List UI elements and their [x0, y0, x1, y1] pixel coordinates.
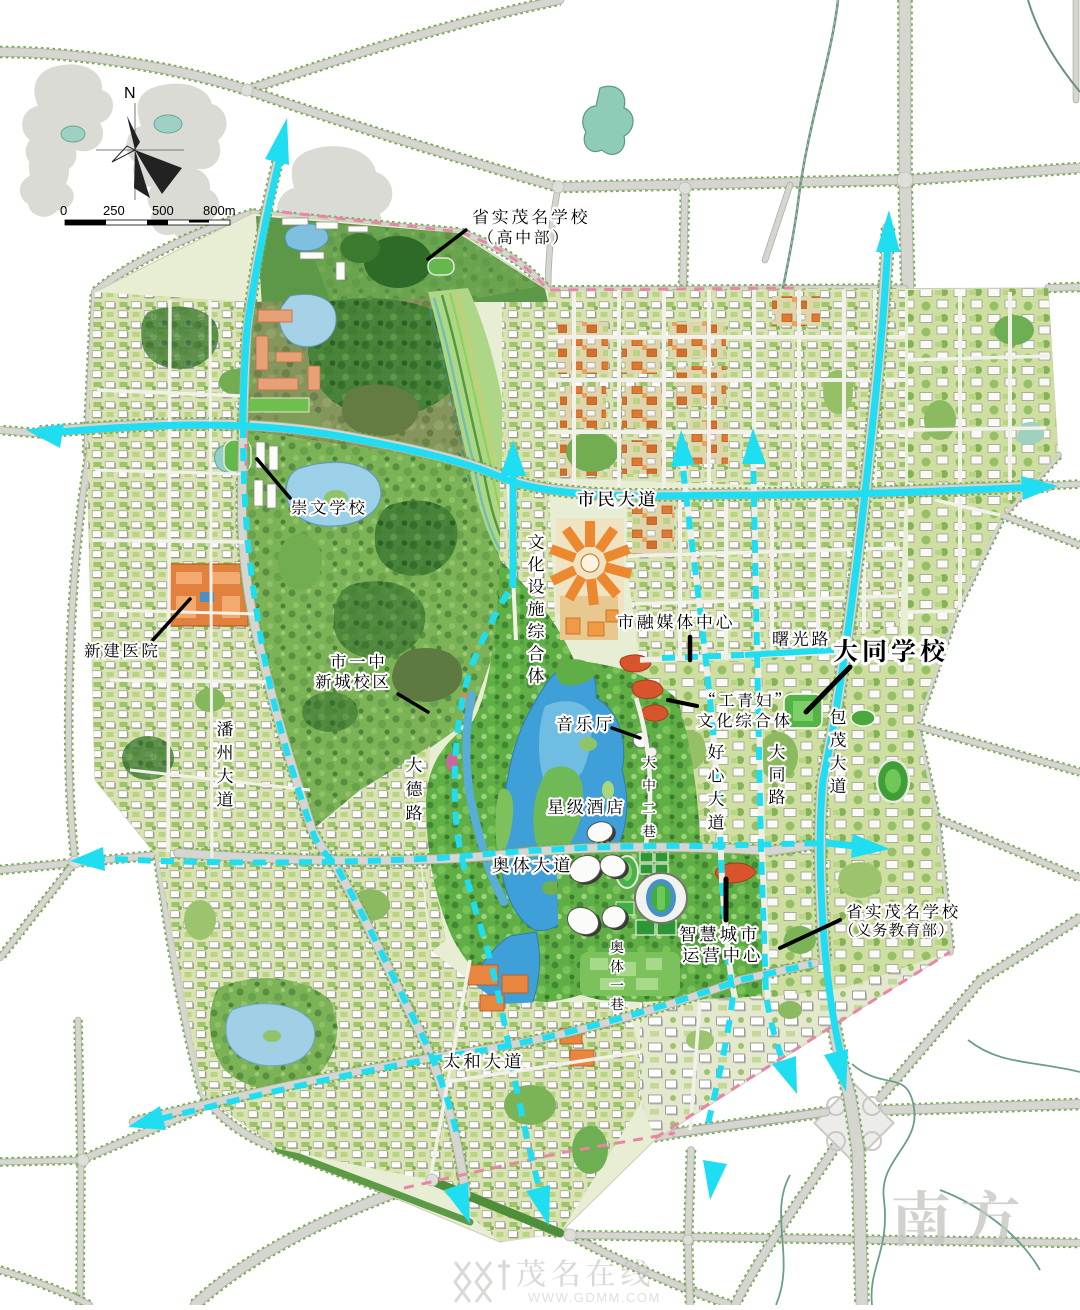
svg-text:500: 500 [152, 203, 174, 218]
svg-text:+: + [982, 1182, 997, 1212]
svg-text:WWW.GDMM.COM: WWW.GDMM.COM [528, 1290, 661, 1305]
svg-text:N: N [124, 85, 136, 102]
svg-text:800m: 800m [203, 203, 236, 218]
svg-text:0: 0 [60, 203, 67, 218]
svg-text:250: 250 [103, 203, 125, 218]
